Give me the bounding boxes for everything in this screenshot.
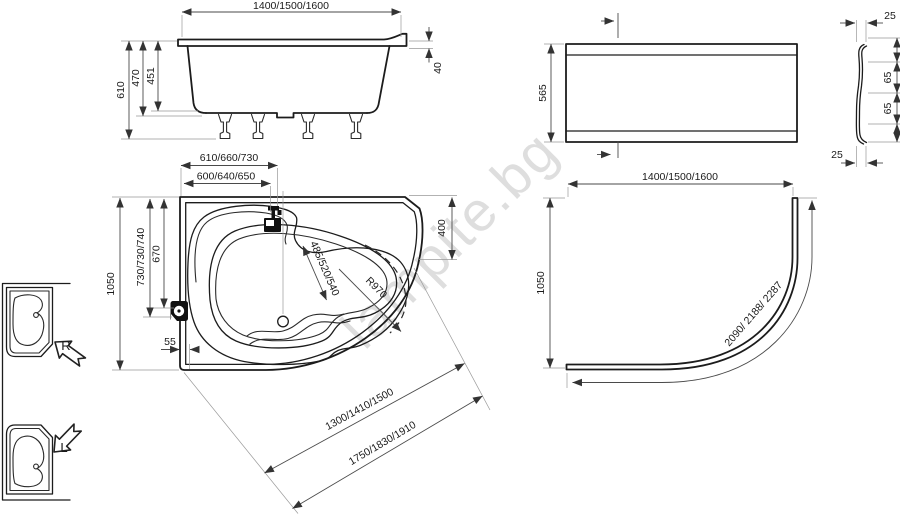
ext-line <box>414 268 490 410</box>
dim-width-total: 1050 <box>105 272 117 296</box>
variant-left-icon <box>7 425 53 494</box>
tub-body-left <box>188 46 207 113</box>
dim-depth-knob: 670 <box>151 245 163 263</box>
dim-panel-height: 565 <box>537 84 549 102</box>
tub-leg <box>252 115 265 139</box>
dim-offset-lower: 65 <box>882 103 894 115</box>
dim-apron-width: 1050 <box>535 271 547 295</box>
dim-tap-outer: 610/660/730 <box>200 152 259 164</box>
technical-drawing: lampite.bg 1400/1500/1600 610 470 451 40 <box>0 0 900 515</box>
watermark: lampite.bg <box>329 119 570 360</box>
drain-knob-icon <box>171 301 189 321</box>
ext-line <box>184 373 298 514</box>
panel-profile-outer <box>859 46 866 143</box>
front-panel-view: 565 25 65 65 25 <box>537 10 900 167</box>
tub-leg <box>350 115 363 139</box>
dim-height-inner: 451 <box>145 67 157 85</box>
dim-bottom-gap: 25 <box>831 149 843 161</box>
drain-hole <box>278 316 289 327</box>
dim-tap: 600/640/650 <box>197 171 256 183</box>
tub-body-right <box>367 46 390 113</box>
dim-apron-length: 1400/1500/1600 <box>642 171 718 183</box>
dim-rim-drop: 40 <box>432 62 444 74</box>
dim-side-length: 1400/1500/1600 <box>253 0 329 12</box>
drawing-svg: lampite.bg 1400/1500/1600 610 470 451 40 <box>0 0 900 515</box>
dim-depth-left: 730/730/740 <box>135 228 147 287</box>
dim-corner-edge: 400 <box>436 219 448 237</box>
tub-leg <box>302 115 315 139</box>
dim-offset-upper: 65 <box>882 72 894 84</box>
apron-outline <box>567 198 798 370</box>
variant-right-icon <box>7 288 53 357</box>
orientation-icons: R L <box>3 284 89 501</box>
dim-diagonal-inner: 1300/1410/1500 <box>323 386 395 433</box>
tub-leg <box>219 115 232 139</box>
dim-diagonal-outer: 1750/1830/1910 <box>347 419 419 468</box>
dim-shell-offset: 55 <box>164 336 176 348</box>
dim-height-total: 610 <box>115 81 127 99</box>
dim-top-gap: 25 <box>884 10 896 22</box>
tub-rim-profile <box>178 34 407 46</box>
variant-right-label: R <box>61 338 70 353</box>
top-view: 610/660/730 600/640/650 730/730/740 670 … <box>105 152 490 514</box>
panel-outline <box>566 44 797 142</box>
apron-view: 1400/1500/1600 1050 2090/ 2188/ 2287 <box>535 171 817 388</box>
dim-diagonal-outer-line <box>293 396 483 509</box>
side-view: 1400/1500/1600 610 470 451 40 <box>115 0 444 139</box>
tap-icon <box>264 206 282 232</box>
dim-height-shell: 470 <box>130 69 142 87</box>
variant-left-label: L <box>60 440 67 455</box>
